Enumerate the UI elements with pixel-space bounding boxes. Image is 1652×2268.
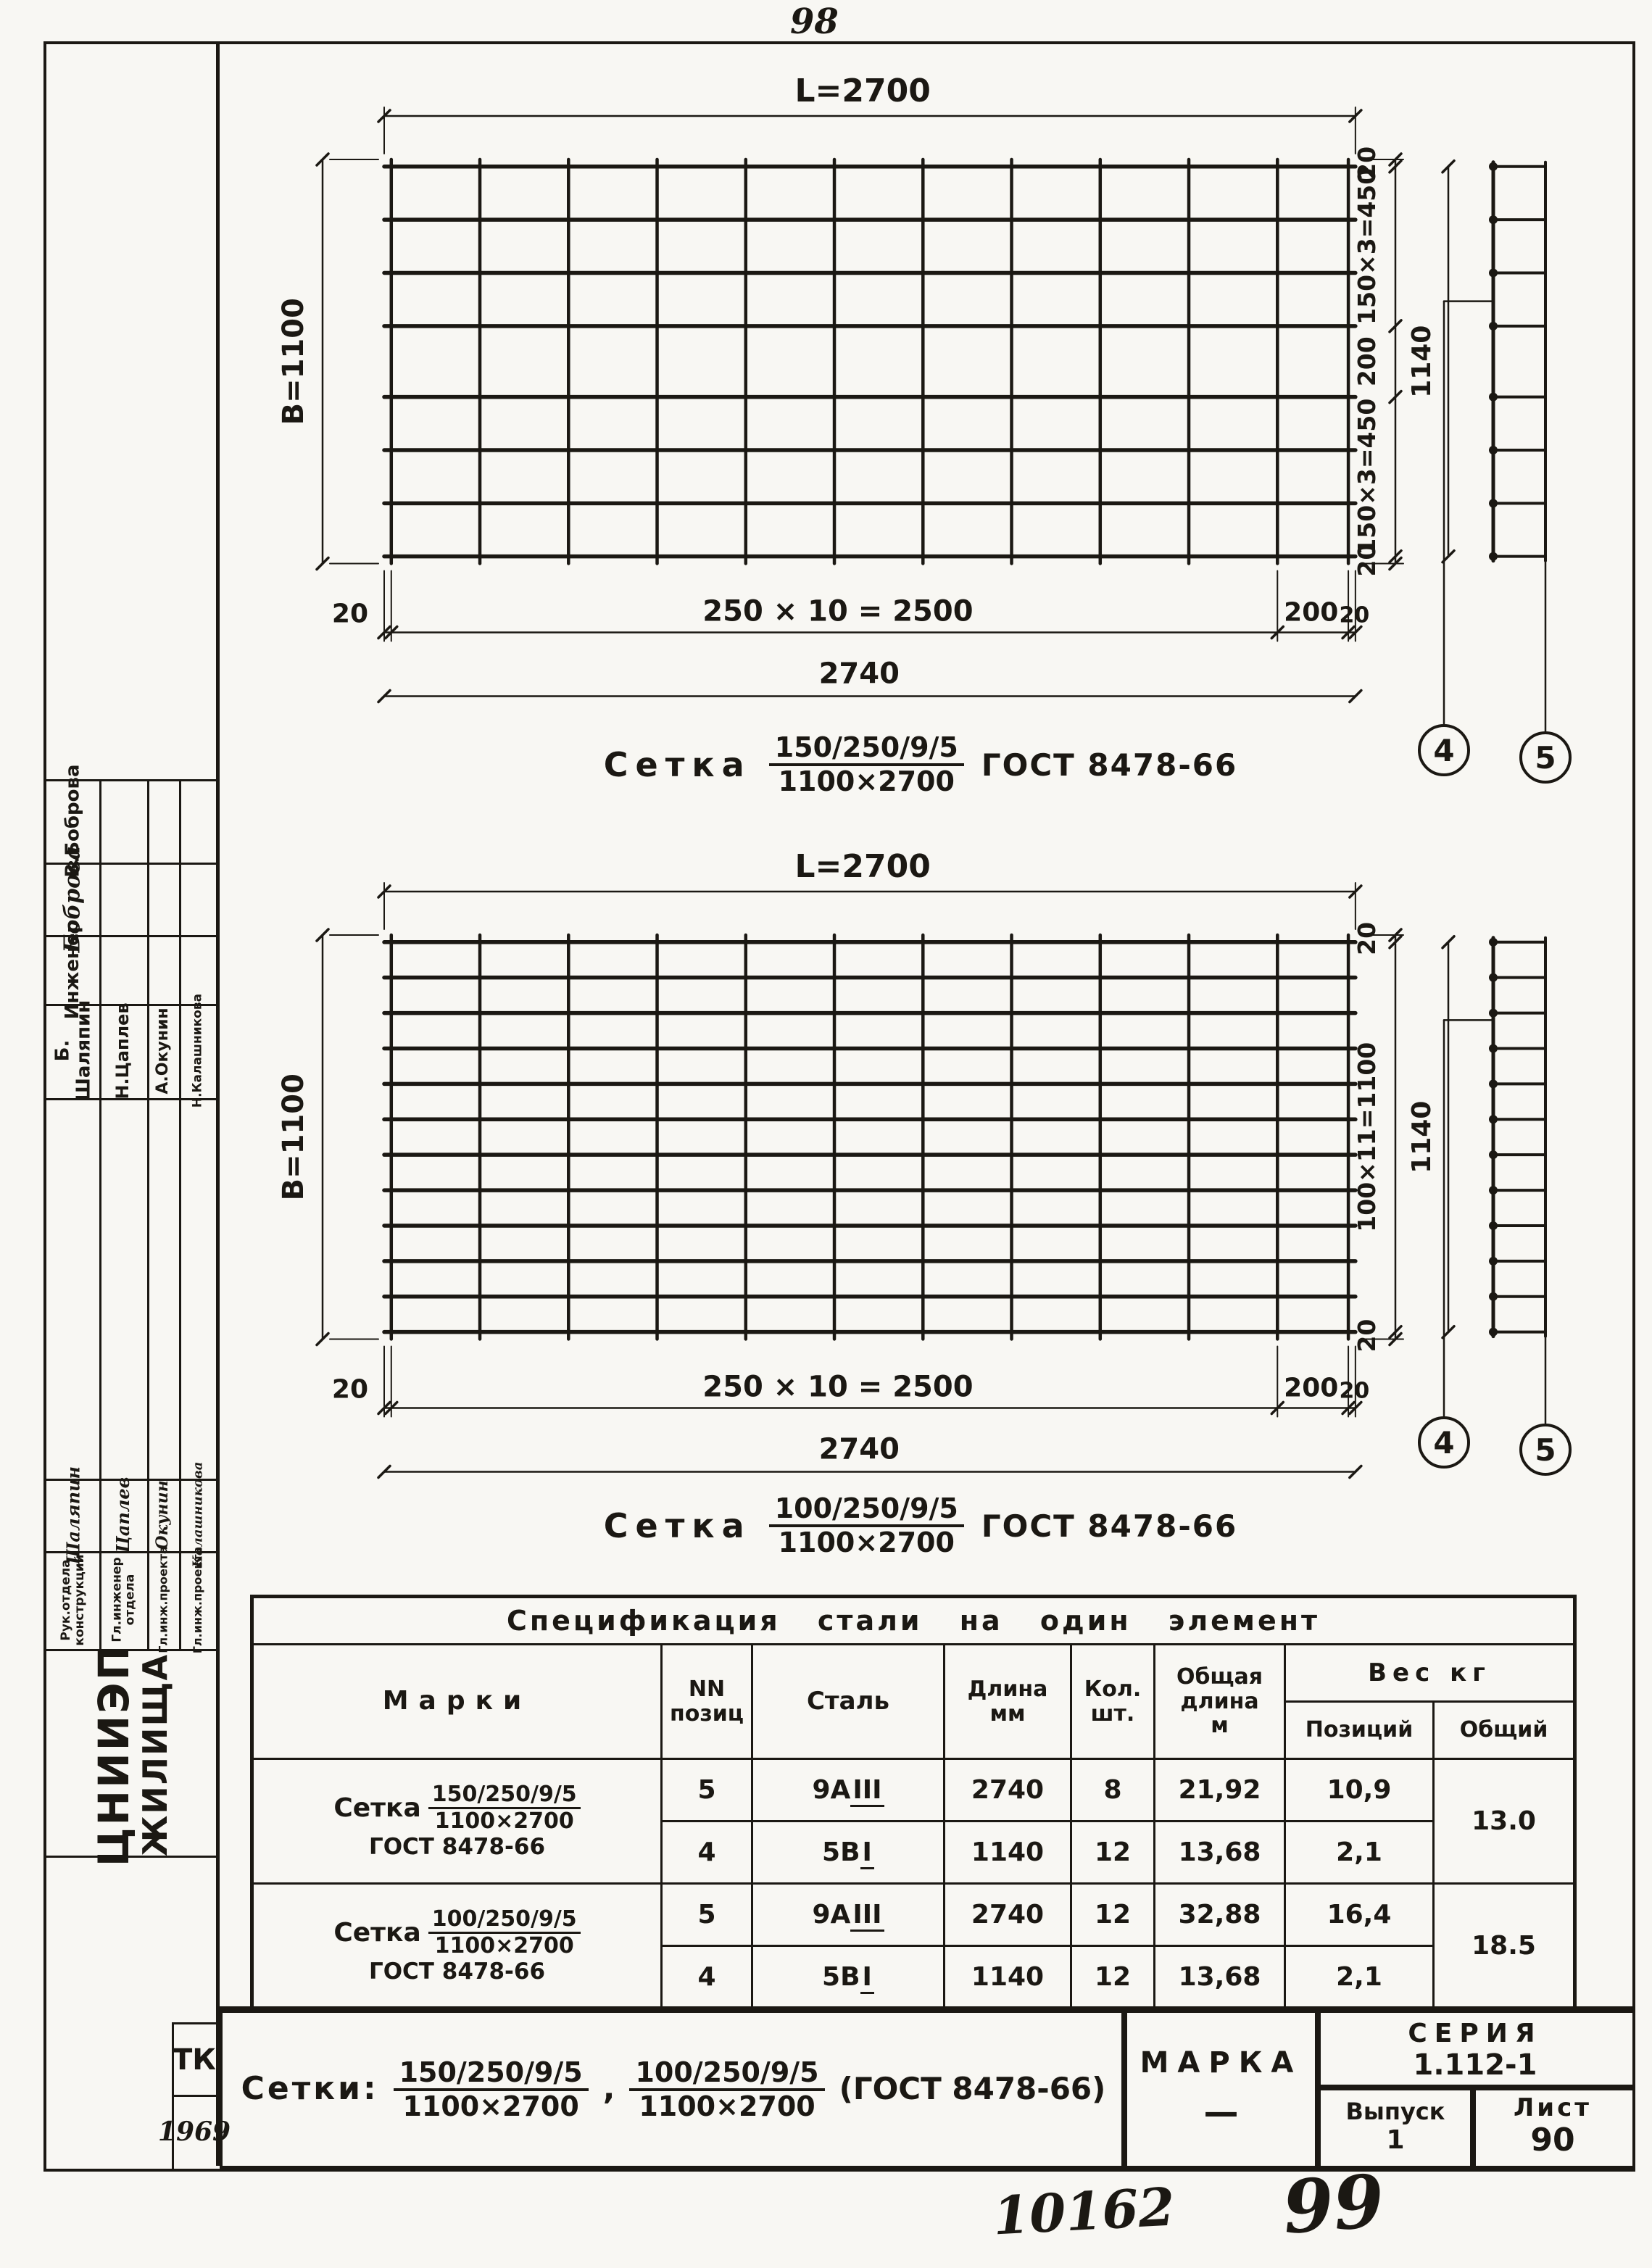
stamp-divider-line bbox=[216, 41, 220, 2166]
vypusk-value: 1 bbox=[1386, 2125, 1404, 2155]
org-line2: ЖИЛИЩА bbox=[138, 1653, 174, 1856]
spec-mark-cell: Сетка150/250/9/51100×2700ГОСТ 8478-66 bbox=[252, 1759, 662, 1884]
stamp-tk: ТК bbox=[174, 2026, 215, 2093]
spec-cell-wt: 2,1 bbox=[1285, 1946, 1434, 2009]
spec-cell-len: 1140 bbox=[945, 1946, 1071, 2009]
stamp-signature: Цаплев bbox=[99, 1480, 147, 1550]
stamp-role: Рук.отдела конструкций bbox=[46, 1553, 99, 1648]
list-label: Лист bbox=[1514, 2094, 1592, 2122]
spec-cell-tlen: 13,68 bbox=[1155, 1946, 1285, 2009]
marka-label: МАРКА bbox=[1140, 2046, 1303, 2080]
col-header-ves-pos: Позиций bbox=[1285, 1702, 1434, 1759]
col-header-marki: Марки bbox=[252, 1645, 662, 1759]
spec-cell-pos: 4 bbox=[662, 1822, 752, 1884]
list-value: 90 bbox=[1530, 2122, 1574, 2159]
org-line1: ЦНИИЭП bbox=[91, 1643, 137, 1867]
spec-cell-stal: 9АIII bbox=[752, 1759, 945, 1822]
organization-name: ЦНИИЭП ЖИЛИЩА bbox=[51, 1656, 215, 1853]
titleblock-seriya: СЕРИЯ 1.112-1 bbox=[1315, 2010, 1635, 2090]
spec-cell-len: 2740 bbox=[945, 1884, 1071, 1946]
subject-separator: , bbox=[603, 2071, 615, 2108]
drawing-sheet: 98 В.Боброва Боброва Инженер Б. Шаляпин … bbox=[0, 0, 1652, 2268]
spec-cell-qty: 8 bbox=[1071, 1759, 1155, 1822]
stamp-name: Н.Калашникова bbox=[180, 1005, 217, 1097]
page-number-bottom: 99 bbox=[1280, 2158, 1387, 2250]
spec-cell-len: 2740 bbox=[945, 1759, 1071, 1822]
subject-prefix: Сетки: bbox=[241, 2071, 379, 2108]
titleblock-vypusk: Выпуск 1 bbox=[1315, 2085, 1476, 2169]
stamp-year: 1969 bbox=[174, 2097, 215, 2166]
spec-table-title: Спецификация стали на один элемент bbox=[252, 1597, 1575, 1645]
caption-word: Сетка bbox=[604, 745, 752, 784]
spec-row: Сетка150/250/9/51100×2700ГОСТ 8478-6659А… bbox=[252, 1759, 1575, 1822]
stamp-role: Гл.инж.проекта bbox=[179, 1553, 216, 1648]
col-header-kol: Кол. шт. bbox=[1071, 1645, 1155, 1759]
spec-row: Сетка100/250/9/51100×2700ГОСТ 8478-6659А… bbox=[252, 1884, 1575, 1946]
seriya-label: СЕРИЯ bbox=[1408, 2019, 1542, 2048]
subject-fraction-1: 150/250/9/5 1100×2700 bbox=[394, 2057, 589, 2122]
mesh1-caption: Сетка 150/250/9/5 1100×2700 ГОСТ 8478-66 bbox=[565, 718, 1276, 812]
page-number-top: 98 bbox=[790, 1, 839, 42]
titleblock-subject: Сетки: 150/250/9/5 1100×2700 , 100/250/9… bbox=[220, 2010, 1127, 2169]
gost-reference: ГОСТ 8478-66 bbox=[981, 1508, 1237, 1544]
col-header-ves-obsh: Общий bbox=[1434, 1702, 1575, 1759]
spec-cell-qty: 12 bbox=[1071, 1884, 1155, 1946]
stamp-signature: Калашникова bbox=[180, 1480, 217, 1550]
stamp-name: А.Окунин bbox=[147, 1005, 179, 1097]
spec-total-weight: 13.0 bbox=[1434, 1759, 1575, 1884]
spec-cell-stal: 9АIII bbox=[752, 1884, 945, 1946]
stamp-role: Гл.инж.проекта bbox=[148, 1553, 180, 1648]
spec-total-weight: 18.5 bbox=[1434, 1884, 1575, 2009]
stamp-grid-line bbox=[172, 2022, 216, 2024]
gost-reference: ГОСТ 8478-66 bbox=[981, 747, 1237, 783]
col-header-dlina: Длина мм bbox=[945, 1645, 1071, 1759]
spec-cell-pos: 4 bbox=[662, 1946, 752, 2009]
spec-cell-qty: 12 bbox=[1071, 1822, 1155, 1884]
steel-specification-table: Спецификация стали на один элемент Марки… bbox=[250, 1595, 1577, 2011]
mesh2-caption: Сетка 100/250/9/5 1100×2700 ГОСТ 8478-66 bbox=[565, 1479, 1276, 1573]
spec-header-row: Марки NN позиц Сталь Длина мм Кол. шт. О… bbox=[252, 1645, 1575, 1702]
spec-cell-pos: 5 bbox=[662, 1884, 752, 1946]
stamp-engineer-label: Инженер bbox=[46, 936, 99, 1002]
titleblock-marka: МАРКА — bbox=[1121, 2010, 1321, 2169]
spec-cell-wt: 10,9 bbox=[1285, 1759, 1434, 1822]
caption-word: Сетка bbox=[604, 1506, 752, 1545]
subject-fraction-2: 100/250/9/5 1100×2700 bbox=[629, 2057, 824, 2122]
vypusk-label: Выпуск bbox=[1346, 2098, 1445, 2125]
spec-cell-tlen: 13,68 bbox=[1155, 1822, 1285, 1884]
spec-cell-len: 1140 bbox=[945, 1822, 1071, 1884]
spec-cell-wt: 2,1 bbox=[1285, 1822, 1434, 1884]
stamp-name: Б. Шаляпин bbox=[47, 1005, 100, 1097]
titleblock-list: Лист 90 bbox=[1470, 2085, 1635, 2169]
spec-cell-qty: 12 bbox=[1071, 1946, 1155, 2009]
mesh-designation-fraction: 100/250/9/5 1100×2700 bbox=[769, 1493, 964, 1558]
spec-cell-wt: 16,4 bbox=[1285, 1884, 1434, 1946]
spec-cell-stal: 5ВI bbox=[752, 1822, 945, 1884]
inventory-number: 10162 bbox=[992, 2176, 1176, 2247]
col-header-ves: Вес кг bbox=[1285, 1645, 1575, 1702]
col-header-stal: Сталь bbox=[752, 1645, 945, 1759]
spec-mark-cell: Сетка100/250/9/51100×2700ГОСТ 8478-66 bbox=[252, 1884, 662, 2009]
subject-suffix: (ГОСТ 8478-66) bbox=[839, 2072, 1106, 2106]
spec-title-row: Спецификация стали на один элемент bbox=[252, 1597, 1575, 1645]
stamp-signature: Окунин bbox=[147, 1480, 179, 1550]
spec-cell-tlen: 32,88 bbox=[1155, 1884, 1285, 1946]
col-header-nn: NN позиц bbox=[662, 1645, 752, 1759]
col-header-obshaya: Общая длина м bbox=[1155, 1645, 1285, 1759]
stamp-role: Гл.инженер отдела bbox=[100, 1553, 148, 1648]
stamp-signature: Шаляпин bbox=[47, 1481, 100, 1550]
spec-cell-tlen: 21,92 bbox=[1155, 1759, 1285, 1822]
marka-value: — bbox=[1204, 2093, 1239, 2132]
stamp-name: Н.Цаплев bbox=[99, 1005, 147, 1097]
seriya-value: 1.112-1 bbox=[1414, 2048, 1537, 2082]
spec-cell-pos: 5 bbox=[662, 1759, 752, 1822]
spec-cell-stal: 5ВI bbox=[752, 1946, 945, 2009]
mesh-designation-fraction: 150/250/9/5 1100×2700 bbox=[769, 732, 964, 797]
